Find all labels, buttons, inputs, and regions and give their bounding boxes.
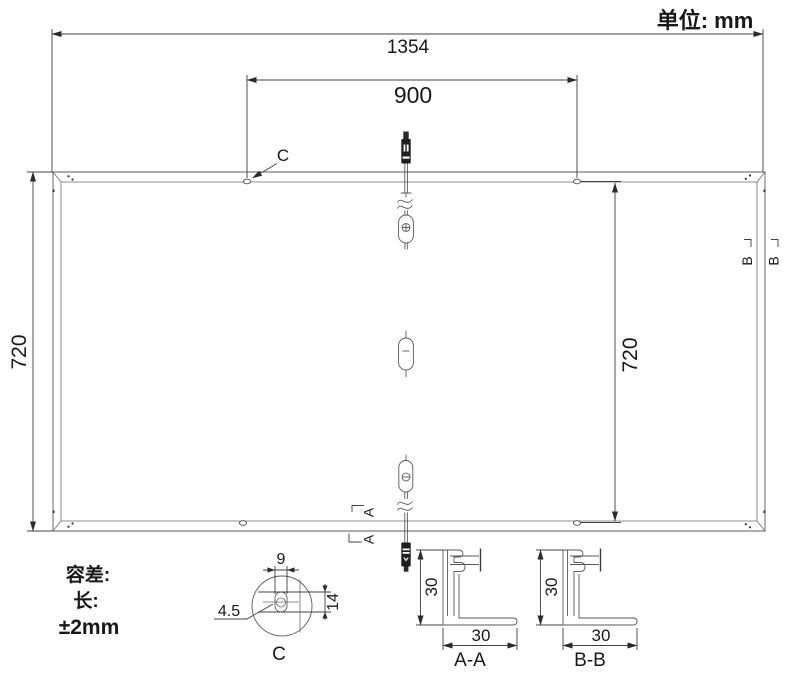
cable-break-bottom [398, 502, 413, 511]
detail-c-hole-label: 4.5 [218, 603, 240, 620]
cable-break-top [398, 200, 413, 209]
section-marker-b: B B [739, 240, 782, 266]
section-a-letter-top: A [361, 507, 377, 517]
mc4-connector-top [401, 132, 410, 164]
mounting-hole-top-right [573, 179, 580, 184]
tolerance-title: 容差: [66, 563, 110, 586]
section-aa-title: A-A [454, 650, 486, 671]
section-b-letter-inner: B [739, 256, 755, 265]
detail-c-height-label: 14 [325, 593, 342, 611]
junction-box-middle [399, 331, 414, 378]
section-bb-title: B-B [574, 650, 606, 671]
cable-bottom [405, 492, 408, 499]
section-a-letter-bottom: A [361, 534, 377, 544]
drawing-canvas: 1354 900 720 720 单位: mm C [0, 0, 790, 678]
technical-drawing-page: 1354 900 720 720 单位: mm C [0, 0, 790, 678]
dimension-900: 900 [247, 75, 577, 178]
detail-c-width-label: 9 [277, 551, 286, 568]
mounting-hole-bottom-left [239, 521, 246, 526]
section-b-letter-outer: B [766, 256, 782, 265]
section-aa-width-label: 30 [472, 626, 491, 645]
dim-720-left-label: 720 [8, 334, 31, 369]
detail-c-view: 9 14 4.5 C [214, 551, 342, 665]
dim-900-label: 900 [394, 82, 432, 108]
dimension-720-left: 720 [8, 172, 53, 531]
junction-box-top [399, 215, 414, 250]
cable-assembly [398, 132, 414, 572]
tolerance-note: 容差: 长: ±2mm [59, 563, 120, 639]
detail-c-title: C [272, 644, 286, 665]
mounting-hole-bottom-right [573, 521, 580, 526]
section-bb-view: 30 30 B-B [536, 549, 637, 672]
tolerance-value: ±2mm [59, 616, 120, 639]
section-marker-a: A A [349, 506, 377, 545]
mounting-hole-top-left [243, 179, 250, 184]
mc4-connector-bottom [401, 543, 410, 572]
dimension-720-right: 720 [581, 182, 642, 523]
dim-1354-label: 1354 [387, 37, 430, 58]
section-aa-height-label: 30 [422, 578, 441, 597]
unit-label: 单位: mm [657, 8, 754, 33]
detail-c-callout: C [253, 146, 290, 178]
detail-c-callout-label: C [277, 146, 289, 165]
section-bb-width-label: 30 [592, 626, 611, 645]
tolerance-length-label: 长: [73, 590, 98, 612]
section-aa-view: 30 30 A-A [416, 549, 517, 672]
cable-top [401, 164, 412, 198]
dim-720-right-label: 720 [619, 337, 642, 372]
junction-box-bottom [399, 455, 413, 493]
section-bb-height-label: 30 [542, 578, 561, 597]
